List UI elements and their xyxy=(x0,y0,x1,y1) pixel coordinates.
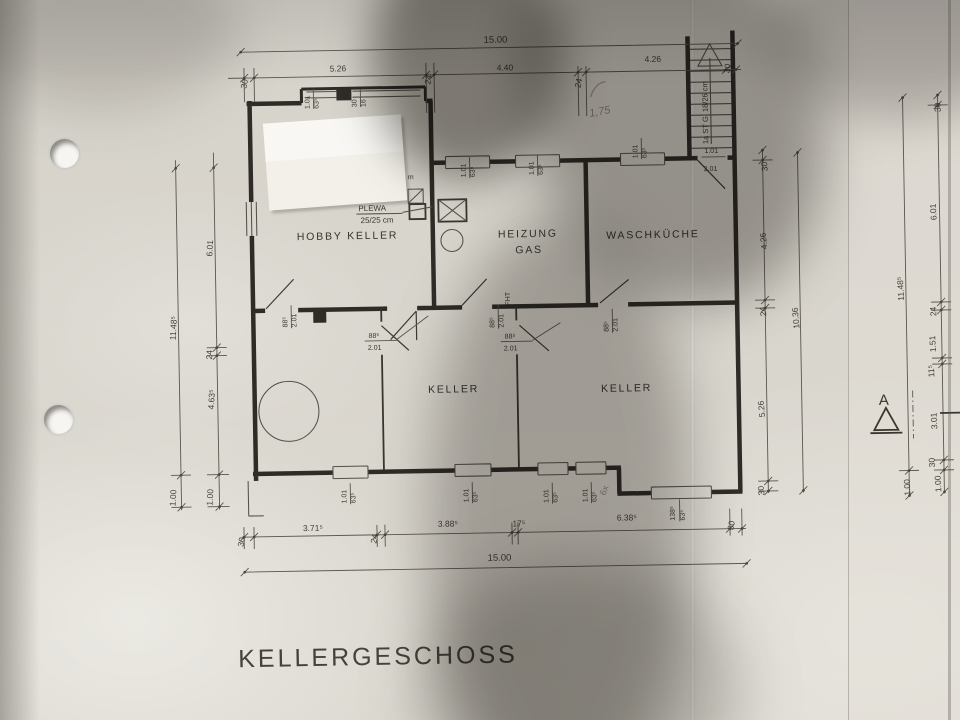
svg-text:24: 24 xyxy=(204,350,214,360)
svg-text:1.01: 1.01 xyxy=(529,161,536,175)
svg-text:2.01: 2.01 xyxy=(504,345,518,352)
svg-text:1.01: 1.01 xyxy=(632,144,639,158)
svg-text:24: 24 xyxy=(572,77,584,88)
room-label-waschkueche: WASCHKÜCHE xyxy=(606,228,700,242)
svg-text:63⁵: 63⁵ xyxy=(470,166,477,177)
svg-text:30: 30 xyxy=(926,457,936,467)
svg-text:24: 24 xyxy=(928,306,938,316)
svg-text:5.26: 5.26 xyxy=(330,63,347,73)
paper-left-edge xyxy=(0,0,40,720)
svg-text:4.26: 4.26 xyxy=(644,54,661,64)
dimension-labels: 15.00 5.26 4.40 4.26 30 24 24 30 15.00 3… xyxy=(159,27,950,570)
bottom-window-label-1: 1.0163⁵ xyxy=(341,483,357,504)
staircase: 1a ST G. 18/26 cm xyxy=(690,44,733,149)
svg-text:88⁵: 88⁵ xyxy=(489,317,496,328)
dim-bottom-total: 15.00 xyxy=(488,552,512,563)
svg-text:1.01: 1.01 xyxy=(463,488,470,502)
door-label-1: 88⁵2.01 xyxy=(282,305,298,328)
bottom-window-label-4: 1.0163⁵ xyxy=(582,482,598,503)
door-label-fht: 88⁵2.01FHT xyxy=(489,291,513,329)
svg-text:1.00: 1.00 xyxy=(933,475,944,492)
svg-text:88⁵: 88⁵ xyxy=(369,333,380,340)
dim-top-total: 15.00 xyxy=(483,34,507,45)
paper-right-edge xyxy=(948,0,951,720)
stair-door-label: 1.012.01 xyxy=(701,148,725,173)
svg-text:30: 30 xyxy=(759,161,770,172)
svg-text:2.01: 2.01 xyxy=(498,314,505,328)
svg-text:63⁵: 63⁵ xyxy=(552,492,559,503)
room-label-keller-1: KELLER xyxy=(428,383,479,396)
svg-text:1.00: 1.00 xyxy=(168,489,179,506)
svg-text:24: 24 xyxy=(422,74,434,85)
svg-text:30: 30 xyxy=(932,102,942,112)
svg-text:63⁵: 63⁵ xyxy=(680,510,687,521)
svg-text:30: 30 xyxy=(756,485,767,496)
svg-text:1.51: 1.51 xyxy=(927,335,938,352)
exterior-stub-line xyxy=(248,481,264,516)
svg-text:3.71⁵: 3.71⁵ xyxy=(303,523,323,533)
section-marker-a: A xyxy=(870,390,960,440)
svg-text:63⁵: 63⁵ xyxy=(313,98,320,109)
svg-text:4.26: 4.26 xyxy=(758,232,769,250)
room-label-gas: GAS xyxy=(515,244,543,256)
svg-text:2.01: 2.01 xyxy=(368,345,382,352)
bottom-window-label-2: 1.0163⁵ xyxy=(463,482,479,503)
taped-paper-patch xyxy=(263,114,411,214)
door-label-3: 88⁵2.01 xyxy=(500,323,560,353)
svg-text:5.26: 5.26 xyxy=(756,400,767,418)
svg-text:1.01: 1.01 xyxy=(704,148,718,155)
bay-pillar xyxy=(336,88,351,100)
tank-circle xyxy=(258,381,319,442)
wasch-window-label: 1.0163⁵ xyxy=(632,138,648,159)
svg-text:88⁵: 88⁵ xyxy=(603,321,610,332)
svg-text:3.88⁵: 3.88⁵ xyxy=(438,518,458,528)
svg-text:1.00: 1.00 xyxy=(902,479,913,496)
svg-text:3.01: 3.01 xyxy=(928,412,939,429)
wide-window-label: 138⁵63⁵ xyxy=(670,499,687,521)
svg-text:63⁵: 63⁵ xyxy=(350,492,357,503)
fht-label: FHT xyxy=(505,291,512,305)
svg-text:1.01: 1.01 xyxy=(304,95,311,109)
dim-right-total: 10.36 xyxy=(790,307,802,329)
room-label-heizung: HEIZUNG xyxy=(498,228,558,241)
svg-text:17⁵: 17⁵ xyxy=(512,518,525,528)
hole-punch-bottom xyxy=(44,405,73,434)
pencil-scribble: 6x xyxy=(598,484,611,497)
svg-text:1.01: 1.01 xyxy=(543,489,550,503)
photo-of-floorplan: 1a ST G. 18/26 cm PLEWA 25/25 cm HOBBY K… xyxy=(0,0,960,720)
room-label-keller-2: KELLER xyxy=(601,382,652,395)
room-label-hobby-keller: HOBBY KELLER xyxy=(297,229,399,243)
svg-text:1.00: 1.00 xyxy=(205,488,216,505)
heizung-window-label-2: 1.0163⁵ xyxy=(528,155,544,176)
dim-far-right-total: 11.48⁵ xyxy=(895,276,906,301)
bottom-window-label-3: 1.0163⁵ xyxy=(543,483,559,504)
svg-text:2.01: 2.01 xyxy=(704,166,718,173)
svg-text:A: A xyxy=(879,392,889,409)
svg-text:138⁵: 138⁵ xyxy=(670,506,677,521)
door-label-2: 88⁵2.01 xyxy=(364,316,429,352)
pencil-tick-mark xyxy=(590,82,605,97)
svg-text:30: 30 xyxy=(725,520,737,531)
door-label-wasch: 88⁵2.01 xyxy=(603,309,619,333)
svg-text:1.01: 1.01 xyxy=(341,490,348,504)
svg-text:4.63⁵: 4.63⁵ xyxy=(206,389,217,410)
svg-text:6.38⁵: 6.38⁵ xyxy=(617,512,637,522)
svg-text:2.01: 2.01 xyxy=(612,318,619,332)
plan-title: KELLERGESCHOSS xyxy=(238,640,518,673)
dim-left-total: 11.48⁵ xyxy=(168,316,179,341)
svg-text:24: 24 xyxy=(758,306,769,317)
svg-text:63⁵: 63⁵ xyxy=(472,491,479,502)
floor-plan-drawing: 1a ST G. 18/26 cm PLEWA 25/25 cm HOBBY K… xyxy=(0,0,960,720)
svg-text:6.01: 6.01 xyxy=(928,203,939,220)
pencil-note-175: 1,75 xyxy=(588,104,612,120)
door-jamb-stub xyxy=(313,310,326,323)
svg-text:1.01: 1.01 xyxy=(461,163,468,177)
svg-text:30: 30 xyxy=(351,99,358,107)
stair-label: 1a ST G. 18/26 cm xyxy=(700,81,710,144)
svg-text:63⁵: 63⁵ xyxy=(538,164,545,175)
svg-text:88⁵: 88⁵ xyxy=(282,317,289,328)
partial-letter: m xyxy=(408,174,414,181)
svg-text:30: 30 xyxy=(238,78,250,89)
svg-text:16: 16 xyxy=(360,99,367,107)
svg-text:88⁵: 88⁵ xyxy=(505,333,516,340)
hole-punch-top xyxy=(50,139,79,168)
svg-text:1.01: 1.01 xyxy=(582,488,589,502)
chimney-size-label: 25/25 cm xyxy=(361,215,394,225)
svg-text:4.40: 4.40 xyxy=(497,62,514,72)
svg-text:30: 30 xyxy=(235,536,247,547)
svg-text:2.01: 2.01 xyxy=(291,313,298,327)
svg-text:63⁵: 63⁵ xyxy=(641,147,648,158)
svg-text:11⁵: 11⁵ xyxy=(926,365,937,378)
svg-text:6.01: 6.01 xyxy=(204,239,215,256)
